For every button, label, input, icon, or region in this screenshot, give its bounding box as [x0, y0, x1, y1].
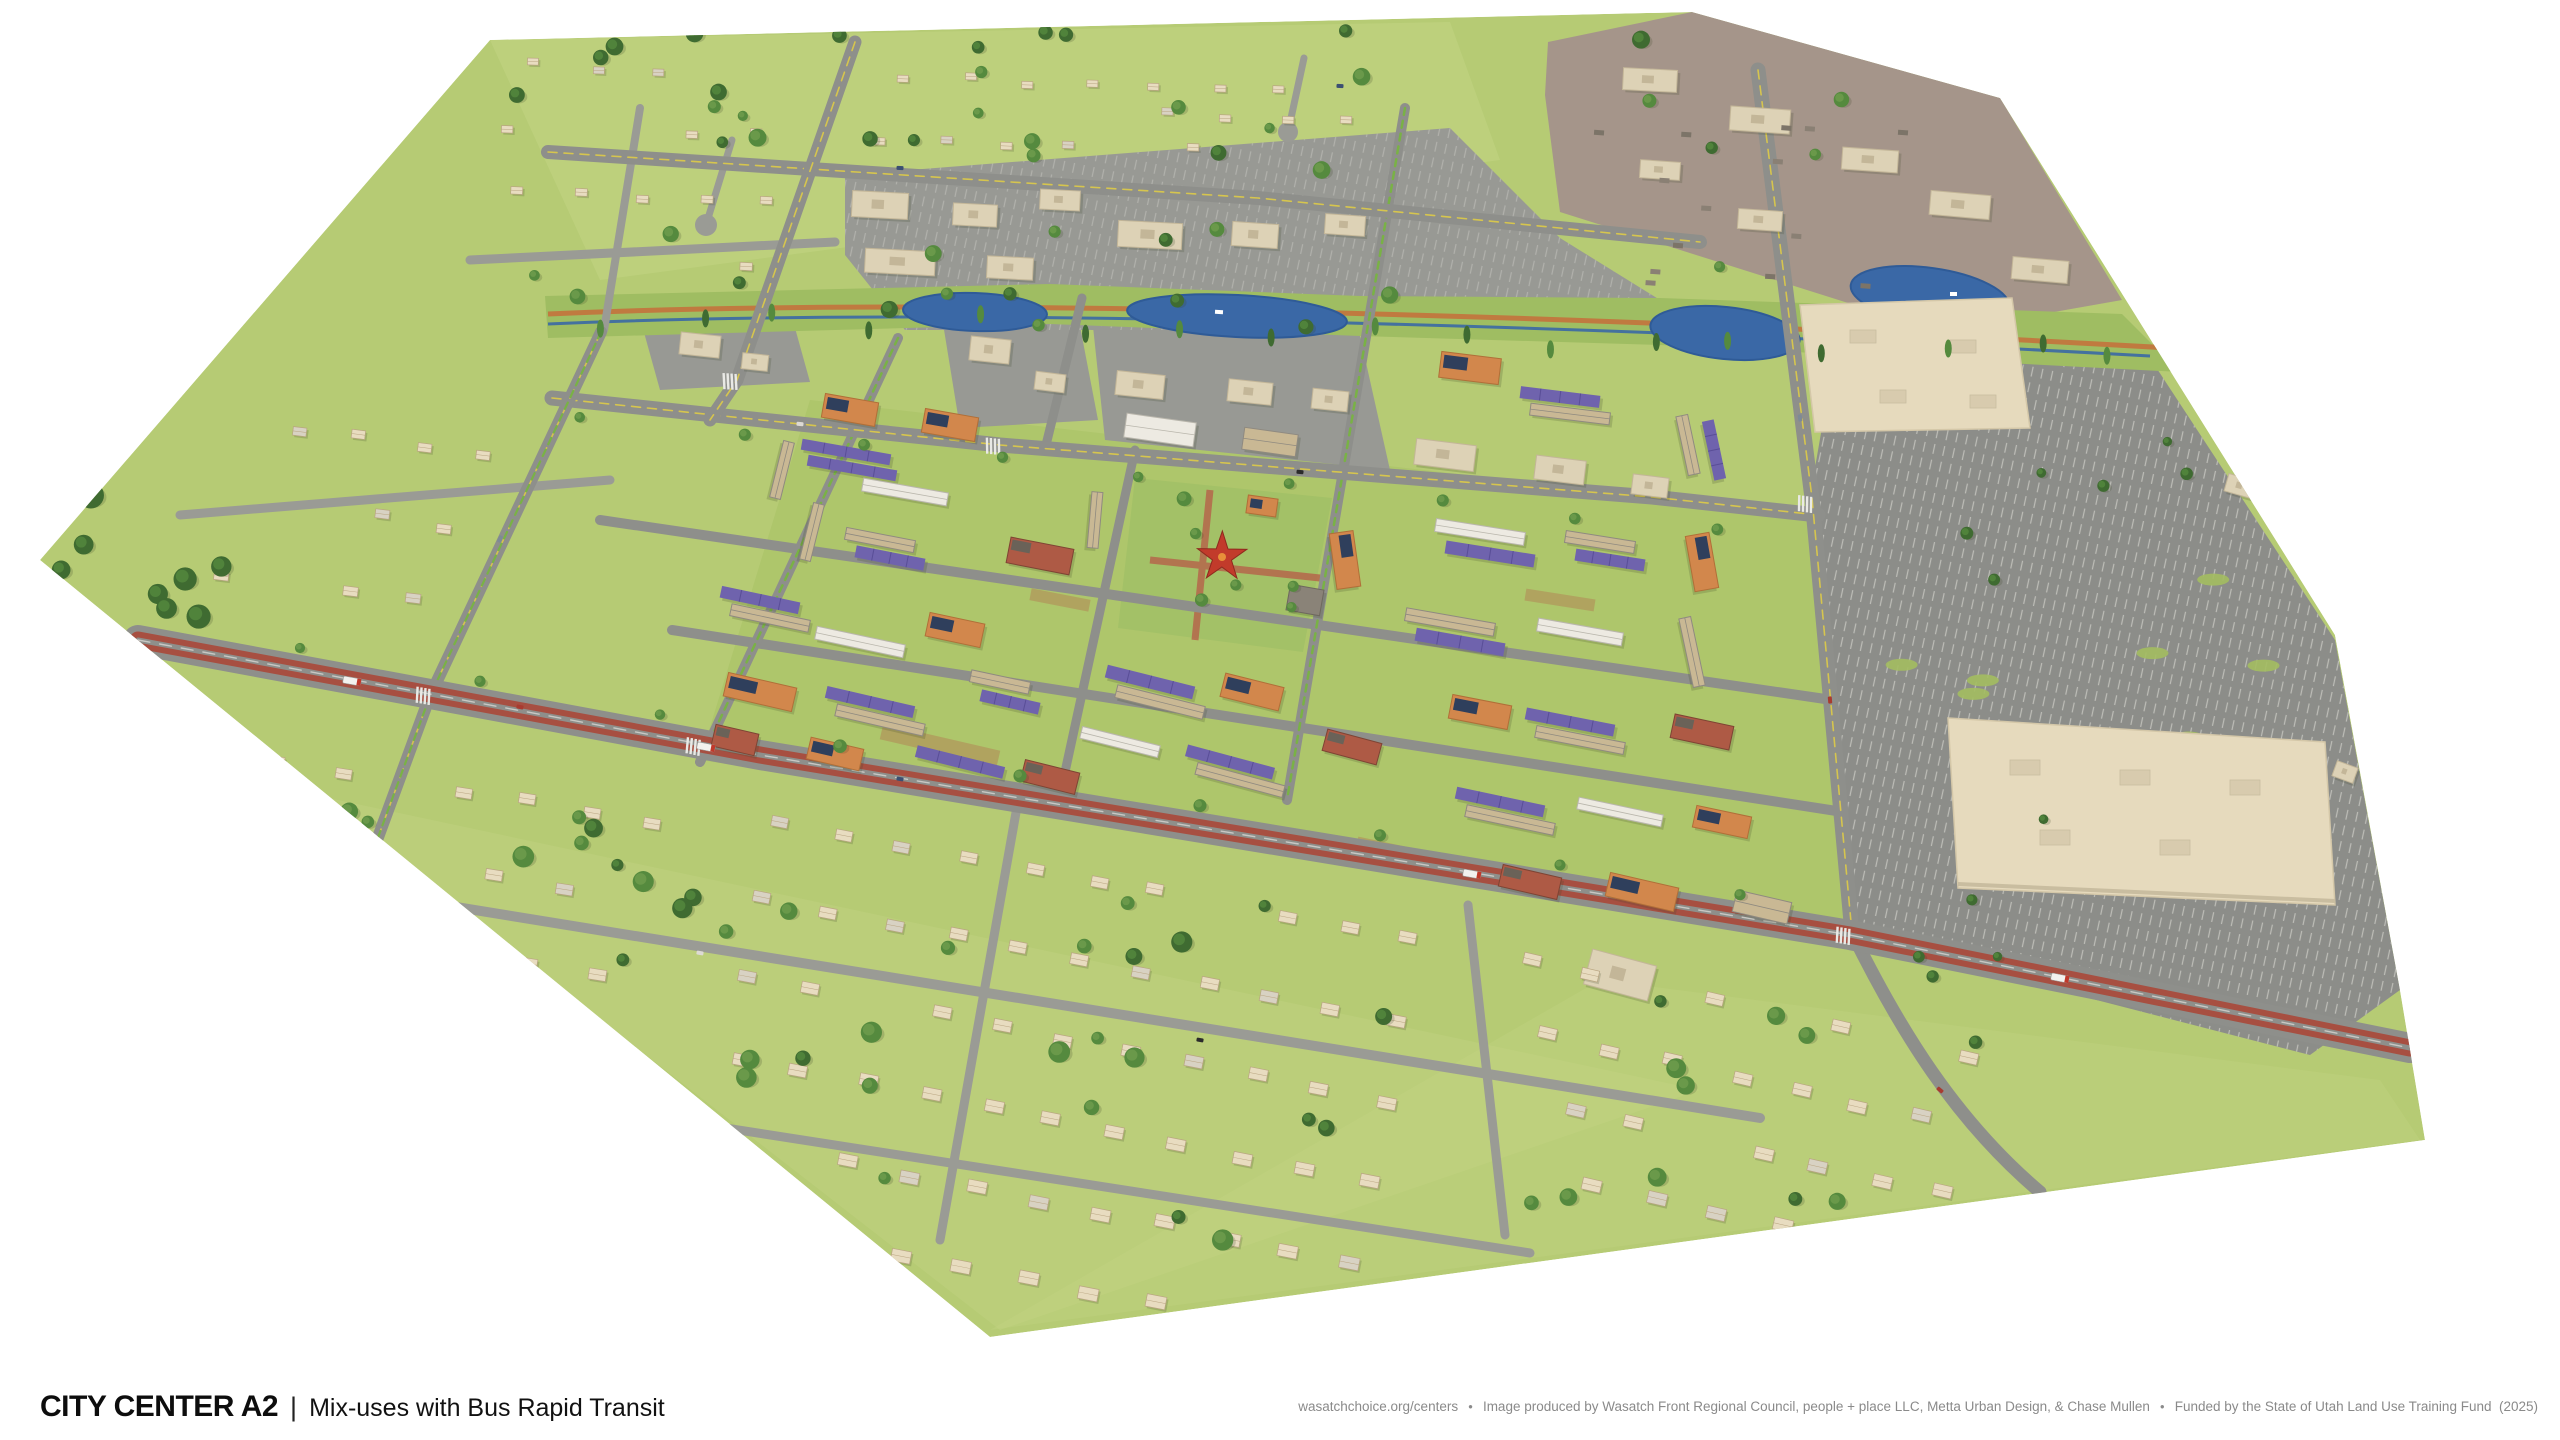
- container: [1791, 233, 1801, 239]
- house: [701, 195, 715, 205]
- house: [145, 737, 164, 751]
- house: [549, 1051, 571, 1067]
- scenario-title: CITY CENTER A2: [40, 1390, 278, 1424]
- container: [1681, 132, 1691, 138]
- attribution-website: wasatchchoice.org/centers: [1298, 1399, 1458, 1414]
- car: [1336, 84, 1343, 88]
- big-box-store: [1800, 298, 2030, 432]
- house: [475, 450, 492, 462]
- tree: [284, 1070, 301, 1087]
- house: [740, 262, 755, 272]
- container: [1659, 178, 1669, 184]
- commercial-building: [1115, 371, 1168, 403]
- commercial-building: [1117, 220, 1185, 252]
- tree: [338, 1108, 357, 1127]
- car: [1828, 696, 1833, 703]
- attribution-credit: Image produced by Wasatch Front Regional…: [1483, 1399, 2150, 1414]
- warehouse: [1841, 147, 1902, 176]
- house: [1062, 141, 1076, 151]
- commercial-building: [1034, 371, 1069, 395]
- commercial-building: [1231, 221, 1282, 251]
- house: [575, 188, 589, 198]
- house: [764, 1224, 788, 1242]
- house: [488, 1040, 510, 1056]
- tree: [739, 1217, 756, 1234]
- house: [2077, 1289, 2102, 1308]
- house: [15, 1044, 37, 1060]
- poplar-tree: [2103, 347, 2110, 365]
- parking-island: [1957, 688, 1989, 700]
- poplar-tree: [1653, 333, 1660, 351]
- car: [896, 166, 903, 170]
- car: [796, 422, 803, 427]
- poplar-tree: [977, 305, 984, 323]
- boat: [1950, 292, 1957, 296]
- tree: [253, 1125, 275, 1147]
- house: [436, 524, 453, 537]
- house: [708, 1134, 731, 1151]
- commercial-building: [969, 336, 1015, 367]
- poplar-tree: [1818, 344, 1825, 362]
- house: [112, 814, 132, 829]
- house: [0, 1123, 10, 1140]
- car: [1296, 470, 1303, 475]
- bullet-icon: ●: [2160, 1402, 2165, 1411]
- house: [1890, 1245, 1914, 1264]
- poplar-tree: [1724, 332, 1731, 350]
- house: [1960, 1261, 1984, 1280]
- container: [1594, 130, 1604, 136]
- poplar-tree: [1372, 317, 1379, 335]
- house: [178, 1153, 201, 1170]
- commercial-building: [1227, 379, 1276, 408]
- container: [1781, 125, 1791, 131]
- tree: [561, 1067, 581, 1087]
- house: [1340, 116, 1354, 125]
- container: [1650, 269, 1660, 275]
- tree: [166, 991, 182, 1007]
- commercial-building: [952, 203, 1000, 230]
- tree: [279, 1136, 293, 1150]
- boat: [1215, 310, 1223, 314]
- tree: [78, 482, 104, 508]
- house: [821, 1234, 845, 1252]
- poplar-tree: [1268, 329, 1275, 347]
- house: [686, 131, 700, 140]
- house: [335, 929, 356, 945]
- house: [292, 427, 309, 439]
- house: [391, 941, 412, 957]
- parking-island: [2136, 647, 2168, 659]
- house: [519, 957, 540, 973]
- caption: CITY CENTER A2 | Mix-uses with Bus Rapid…: [40, 1390, 665, 1424]
- clipped-scene: [0, 11, 2425, 1350]
- house: [336, 1092, 358, 1108]
- tree: [593, 15, 605, 27]
- page: CITY CENTER A2 | Mix-uses with Bus Rapid…: [0, 0, 2560, 1440]
- container: [1898, 130, 1908, 136]
- warehouse: [2011, 257, 2072, 287]
- commercial-building: [1039, 189, 1083, 214]
- container: [1805, 126, 1815, 132]
- tree: [686, 25, 704, 43]
- house: [1000, 142, 1014, 152]
- house: [267, 919, 288, 934]
- commercial-building: [986, 256, 1036, 283]
- house: [301, 841, 321, 856]
- warehouse: [1737, 208, 1785, 234]
- commercial-building: [741, 353, 772, 374]
- house: [205, 1072, 227, 1088]
- house: [307, 1004, 329, 1020]
- commercial-building: [679, 332, 724, 361]
- house: [417, 443, 434, 455]
- house: [454, 946, 475, 962]
- commercial-building: [851, 191, 911, 223]
- attribution-funding: Funded by the State of Utah Land Use Tra…: [2175, 1399, 2538, 1414]
- house: [428, 1193, 451, 1210]
- warehouse: [1729, 106, 1794, 137]
- poplar-tree: [1176, 320, 1183, 338]
- house: [271, 1085, 293, 1101]
- house: [511, 186, 525, 196]
- house: [207, 742, 227, 756]
- house: [941, 136, 955, 146]
- bullet-icon: ●: [1468, 1402, 1473, 1411]
- house: [119, 1139, 142, 1156]
- house: [268, 755, 288, 770]
- house: [1261, 1317, 1285, 1335]
- house: [48, 1136, 71, 1153]
- house: [171, 824, 191, 839]
- house: [1282, 116, 1296, 125]
- tree: [183, 857, 200, 874]
- house: [342, 586, 360, 599]
- house: [83, 888, 104, 903]
- caption-separator: |: [290, 1392, 297, 1423]
- big-box-store: [1948, 718, 2335, 905]
- attribution-line: wasatchchoice.org/centers ● Image produc…: [1298, 1399, 2538, 1414]
- house: [242, 1159, 265, 1176]
- container: [1701, 205, 1711, 211]
- scenario-subtitle: Mix-uses with Bus Rapid Transit: [309, 1394, 665, 1423]
- container: [1773, 159, 1783, 165]
- house: [147, 1065, 169, 1081]
- house: [1219, 115, 1233, 124]
- poplar-tree: [1945, 340, 1952, 358]
- poplar-tree: [1463, 326, 1470, 344]
- poplar-tree: [1547, 340, 1554, 358]
- house: [176, 984, 197, 1000]
- house: [364, 1182, 387, 1199]
- house: [238, 1000, 260, 1016]
- commercial-building: [1631, 474, 1672, 501]
- poplar-tree: [597, 320, 604, 338]
- house: [1832, 1229, 1856, 1248]
- house: [351, 429, 368, 441]
- house: [236, 828, 256, 843]
- house: [116, 976, 137, 992]
- house: [1329, 1331, 1354, 1350]
- house: [699, 1213, 723, 1231]
- poplar-tree: [2214, 334, 2221, 352]
- house: [405, 593, 423, 606]
- house: [367, 1015, 389, 1031]
- parking-island: [1967, 674, 1999, 686]
- scenario-rendering: [0, 0, 2560, 1440]
- aerial-render-svg: [0, 0, 2560, 1440]
- container: [1765, 274, 1775, 280]
- poplar-tree: [1082, 325, 1089, 343]
- house: [2059, 1213, 2083, 1231]
- poplar-tree: [2040, 334, 2047, 352]
- poplar-tree: [865, 321, 872, 339]
- house: [375, 509, 392, 522]
- house: [460, 1115, 482, 1132]
- parking-island: [1886, 659, 1918, 671]
- poplar-tree: [702, 309, 709, 327]
- parking-island: [2247, 660, 2279, 672]
- house: [396, 1102, 418, 1119]
- house: [80, 1058, 102, 1074]
- container: [1673, 243, 1683, 249]
- house: [636, 195, 650, 205]
- container: [1860, 283, 1870, 289]
- house: [519, 1128, 542, 1145]
- tree: [971, 11, 984, 24]
- container: [1645, 280, 1655, 286]
- commercial-building: [1311, 388, 1352, 414]
- house: [424, 1028, 446, 1044]
- house: [1187, 143, 1201, 153]
- poplar-tree: [768, 304, 775, 322]
- commercial-building: [1324, 214, 1368, 239]
- tree: [533, 14, 549, 30]
- house: [489, 1203, 512, 1220]
- parking-island: [2197, 574, 2229, 586]
- tree: [312, 992, 331, 1011]
- house: [2015, 1271, 2039, 1290]
- tree: [577, 1143, 591, 1157]
- warehouse: [1622, 68, 1680, 95]
- warehouse: [1929, 190, 1994, 222]
- house: [760, 196, 774, 206]
- house: [148, 902, 169, 917]
- house: [501, 125, 515, 134]
